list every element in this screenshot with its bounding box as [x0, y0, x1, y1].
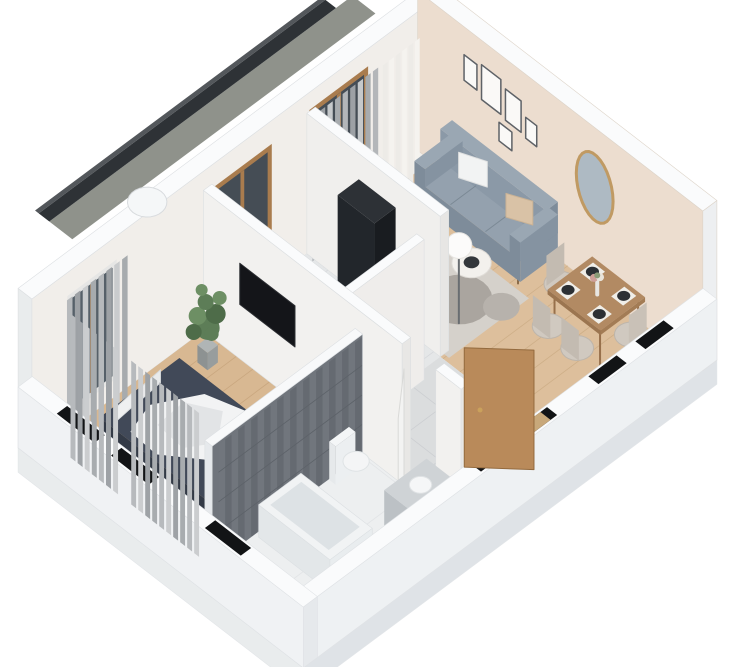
floorplan-render: [0, 0, 750, 667]
plate-1: [561, 285, 574, 295]
roof-vent: [127, 187, 166, 217]
apartment-floorplan-3d: [0, 0, 750, 667]
toilet-bowl: [343, 451, 369, 471]
rug-pattern-blob-5: [483, 293, 520, 321]
floor-lamp-globe: [446, 233, 472, 259]
side-table-tray: [464, 256, 480, 268]
plate-2: [593, 309, 606, 319]
plate-4: [617, 291, 630, 301]
entry-door: [464, 348, 534, 470]
flower-3: [594, 272, 600, 278]
entry-door-handle: [478, 407, 483, 412]
bathroom-sink: [409, 476, 431, 493]
